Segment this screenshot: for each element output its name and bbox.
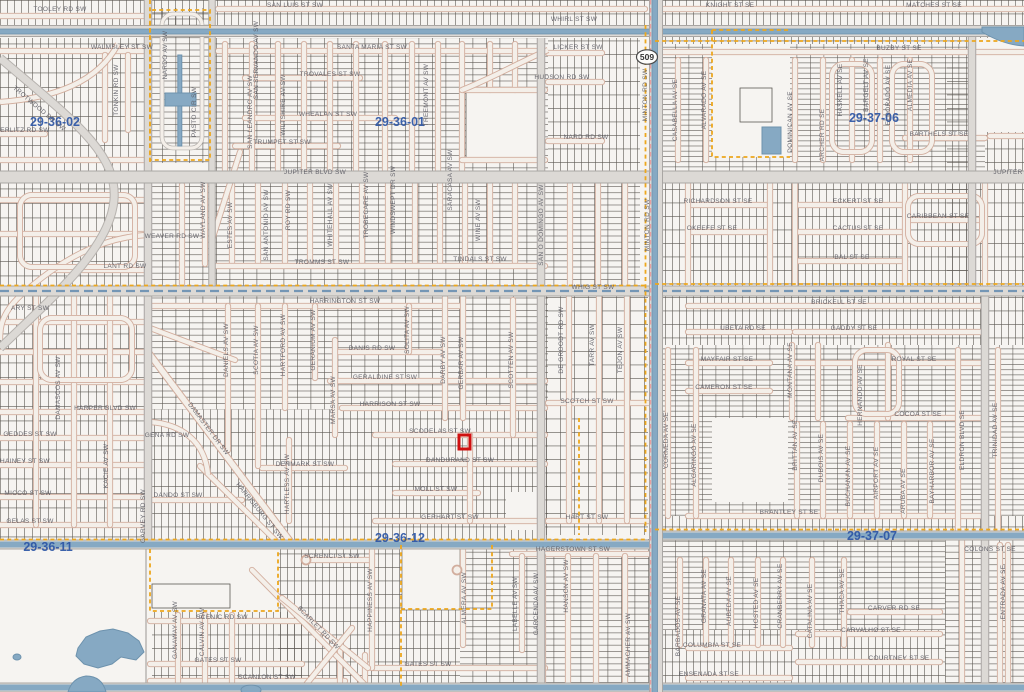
svg-text:GANAWAY AV SW: GANAWAY AV SW (172, 600, 179, 659)
svg-text:HARTFORD AV SW: HARTFORD AV SW (280, 313, 287, 376)
svg-text:GERBAR AV SW: GERBAR AV SW (458, 336, 465, 390)
svg-text:HUDSON RD SW: HUDSON RD SW (534, 74, 590, 81)
svg-text:MICCO ST SW: MICCO ST SW (4, 490, 52, 497)
svg-text:DAMASCOS AV SW: DAMASCOS AV SW (55, 356, 62, 420)
svg-text:29-37-07: 29-37-07 (847, 529, 897, 543)
svg-text:LABELLE AV SW: LABELLE AV SW (512, 576, 519, 631)
svg-text:MOLL ST SW: MOLL ST SW (415, 486, 458, 493)
svg-text:THACA AV SE: THACA AV SE (839, 568, 846, 613)
svg-text:BRANTLEY ST SE: BRANTLEY ST SE (760, 509, 819, 516)
svg-text:OKEEFE ST SE: OKEEFE ST SE (687, 225, 738, 232)
svg-text:CRANBERRY AV SE: CRANBERRY AV SE (777, 563, 784, 629)
svg-text:TRUMPET ST SW: TRUMPET ST SW (253, 139, 311, 146)
svg-text:CARVALHO ST SE: CARVALHO ST SE (841, 627, 901, 634)
svg-text:GADDY ST SE: GADDY ST SE (831, 325, 878, 332)
svg-text:SANTA MARIA ST SW: SANTA MARIA ST SW (337, 44, 408, 51)
svg-text:NARDO AV SW: NARDO AV SW (162, 30, 169, 79)
svg-text:DE GROODT RD SW: DE GROODT RD SW (558, 306, 565, 374)
svg-text:MAYFAIR ST SE: MAYFAIR ST SE (701, 356, 754, 363)
svg-text:COLUMBIA ST SE: COLUMBIA ST SE (683, 642, 742, 649)
svg-text:SOLITA AV SW: SOLITA AV SW (404, 306, 411, 354)
svg-text:TROMMS ST SW: TROMMS ST SW (295, 259, 350, 266)
svg-text:ALGARINGO AV SE: ALGARINGO AV SE (691, 423, 698, 487)
svg-text:BARGELT AV SE: BARGELT AV SE (863, 58, 870, 112)
svg-text:CARVER RD SE: CARVER RD SE (868, 605, 921, 612)
svg-text:ESTES AV SW: ESTES AV SW (227, 201, 234, 248)
svg-text:GELAS ST SW: GELAS ST SW (6, 518, 54, 525)
svg-text:CORNEDA AV SE: CORNEDA AV SE (663, 412, 670, 469)
svg-text:DANDURAND ST SW: DANDURAND ST SW (426, 457, 495, 464)
svg-text:GENA RD SW: GENA RD SW (145, 432, 190, 439)
svg-text:ROY RD SW: ROY RD SW (285, 189, 292, 230)
svg-text:JUPITER BLVD SW: JUPITER BLVD SW (284, 169, 347, 176)
svg-text:HAPPINESS AV SW: HAPPINESS AV SW (367, 568, 374, 632)
svg-text:PASTO CIR SW: PASTO CIR SW (191, 86, 198, 137)
svg-text:MINTON RD SW: MINTON RD SW (644, 198, 651, 251)
svg-text:TINDALS ST SW: TINDALS ST SW (453, 256, 507, 263)
svg-text:HART ST SW: HART ST SW (566, 514, 609, 521)
svg-text:ERLITZ RD SW: ERLITZ RD SW (0, 127, 50, 134)
svg-text:LICKER ST SW: LICKER ST SW (553, 44, 603, 51)
svg-text:HASKELL AV SE: HASKELL AV SE (837, 63, 844, 116)
svg-text:DARBY AV SW: DARBY AV SW (440, 336, 447, 384)
svg-text:TROVALES ST SW: TROVALES ST SW (300, 71, 361, 78)
svg-text:BUZBY ST SE: BUZBY ST SE (876, 45, 922, 52)
svg-text:HAINEY ST SW: HAINEY ST SW (0, 458, 51, 465)
svg-text:SCOTTEN AV SW: SCOTTEN AV SW (508, 331, 515, 388)
svg-text:KACIE AV SW: KACIE AV SW (103, 443, 110, 488)
svg-text:TARR AV SW: TARR AV SW (589, 323, 596, 366)
svg-text:DUBOIS AV SE: DUBOIS AV SE (818, 433, 825, 482)
svg-text:ALMERA AV SW: ALMERA AV SW (461, 571, 468, 623)
svg-text:GARCENDA AV SW: GARCENDA AV SW (533, 572, 540, 635)
svg-text:WHITEHALL AV SW: WHITEHALL AV SW (327, 183, 334, 247)
svg-text:SAN LUIS ST SW: SAN LUIS ST SW (267, 2, 324, 9)
svg-text:BARTHELS ST SE: BARTHELS ST SE (910, 131, 969, 138)
svg-text:SAN SERVANDO AV SW: SAN SERVANDO AV SW (253, 20, 260, 99)
svg-text:BAYHARBOR AV SE: BAYHARBOR AV SE (929, 438, 936, 503)
svg-text:GERALDINE ST SW: GERALDINE ST SW (353, 374, 418, 381)
svg-text:ECKERT ST SE: ECKERT ST SE (833, 198, 884, 205)
svg-text:BRICKELL ST SE: BRICKELL ST SE (811, 299, 867, 306)
svg-text:LANT RD SW: LANT RD SW (104, 263, 148, 270)
svg-text:HERNANDO AV SE: HERNANDO AV SE (857, 364, 864, 426)
svg-text:DANIELS AV SW: DANIELS AV SW (223, 323, 230, 377)
svg-text:GARVEY RD SW: GARVEY RD SW (140, 488, 147, 542)
svg-text:MARSA AV SW: MARSA AV SW (330, 375, 337, 424)
svg-text:NARD RD SW: NARD RD SW (564, 134, 609, 141)
svg-text:ELDORADO AV SE: ELDORADO AV SE (885, 64, 892, 125)
svg-text:GERHART ST SW: GERHART ST SW (421, 514, 479, 521)
svg-text:TREEMONT AV SW: TREEMONT AV SW (423, 63, 430, 126)
svg-text:ARCHER RD SE: ARCHER RD SE (819, 108, 826, 161)
svg-text:CASABELLA AV SE: CASABELLA AV SE (672, 79, 679, 142)
svg-text:TONKIN RD SW: TONKIN RD SW (113, 64, 120, 116)
svg-text:AMMACHER AV SW: AMMACHER AV SW (625, 612, 632, 677)
svg-text:TROBECARE AV SW: TROBECARE AV SW (363, 171, 370, 238)
svg-text:JUPITER: JUPITER (993, 169, 1022, 176)
svg-text:SCOTCH ST SW: SCOTCH ST SW (560, 398, 614, 405)
svg-text:ROYAL ST SE: ROYAL ST SE (891, 356, 936, 363)
svg-text:WINE AV SW: WINE AV SW (475, 198, 482, 240)
svg-text:SAN LEANDRO AV SW: SAN LEANDRO AV SW (247, 75, 254, 149)
svg-text:ARUBA AV SE: ARUBA AV SE (900, 468, 907, 514)
svg-text:GATES ST SW: GATES ST SW (194, 657, 242, 664)
svg-text:HOSTED AV SE: HOSTED AV SE (753, 577, 760, 628)
svg-text:SAN ANTONIO AV SW: SAN ANTONIO AV SW (263, 189, 270, 261)
svg-text:TOOLEY RD SW: TOOLEY RD SW (33, 6, 87, 13)
svg-text:WILTSHIRE AV SW: WILTSHIRE AV SW (280, 74, 287, 136)
svg-text:COURTNEY ST SE: COURTNEY ST SE (869, 655, 930, 662)
svg-text:HARRINGTON ST SW: HARRINGTON ST SW (310, 298, 381, 305)
svg-text:CAMERON ST SE: CAMERON ST SE (695, 384, 753, 391)
svg-text:ENSENADA ST SE: ENSENADA ST SE (679, 671, 739, 678)
svg-text:29-36-11: 29-36-11 (23, 540, 72, 554)
svg-text:ALMEDIA AV SE: ALMEDIA AV SE (907, 59, 914, 112)
svg-text:SAN O DOMINGO AV SW: SAN O DOMINGO AV SW (538, 184, 545, 266)
svg-text:ARY ST SW: ARY ST SW (11, 305, 50, 312)
svg-text:SCODELAS ST SW: SCODELAS ST SW (409, 428, 471, 435)
svg-text:CARIBBEAN ST SE: CARIBBEAN ST SE (907, 213, 970, 220)
svg-text:GATES ST SW: GATES ST SW (404, 661, 452, 668)
svg-text:ELDRON BLVD SE: ELDRON BLVD SE (959, 410, 966, 470)
svg-text:UBETA RD SE: UBETA RD SE (720, 325, 766, 332)
svg-text:TEJON AV SW: TEJON AV SW (617, 326, 624, 373)
svg-text:HAGERSTOWN ST SW: HAGERSTOWN ST SW (536, 546, 611, 553)
svg-text:SCOTIA AV SW: SCOTIA AV SW (253, 325, 260, 375)
svg-text:MINTON RD SW: MINTON RD SW (642, 68, 649, 121)
svg-text:BRITTAN AV SE: BRITTAN AV SE (792, 419, 799, 471)
svg-text:DOMINICAN AV SE: DOMINICAN AV SE (787, 91, 794, 153)
svg-text:WINDSWEPT DR SW: WINDSWEPT DR SW (390, 165, 397, 234)
svg-text:TRINIDAD AV SE: TRINIDAD AV SE (992, 402, 999, 457)
svg-text:GRANATA AV SE: GRANATA AV SE (701, 569, 708, 623)
svg-text:CALVIN AV SW: CALVIN AV SW (199, 607, 206, 656)
svg-text:SCRENCI ST SW: SCRENCI ST SW (304, 553, 360, 560)
svg-text:WHEALAN ST SW: WHEALAN ST SW (299, 111, 358, 118)
svg-text:WHIRL ST SW: WHIRL ST SW (551, 16, 598, 23)
svg-text:GEDDES ST SW: GEDDES ST SW (3, 431, 57, 438)
svg-text:WHIG ST SW: WHIG ST SW (572, 284, 616, 291)
svg-text:COLONS ST SE: COLONS ST SE (964, 546, 1016, 553)
svg-text:AIRPORT AV SE: AIRPORT AV SE (873, 446, 880, 499)
svg-text:CACTUS ST SE: CACTUS ST SE (833, 225, 884, 232)
svg-text:SARACASA AV SW: SARACASA AV SW (447, 149, 454, 211)
svg-text:DANIS RD SW: DANIS RD SW (349, 345, 396, 352)
svg-text:29-36-12: 29-36-12 (375, 531, 425, 545)
svg-text:WALMSLEY ST SW: WALMSLEY ST SW (91, 44, 154, 51)
svg-text:COCOA ST SE: COCOA ST SE (894, 411, 942, 418)
svg-text:KNIGHT ST SE: KNIGHT ST SE (706, 2, 755, 9)
svg-text:BUCHANAN AV SE: BUCHANAN AV SE (845, 445, 852, 506)
svg-text:29-36-01: 29-36-01 (375, 115, 425, 129)
svg-text:RICHARDSON ST SE: RICHARDSON ST SE (684, 198, 753, 205)
svg-text:MATCHES ST SE: MATCHES ST SE (906, 2, 962, 9)
svg-text:BAL ST SE: BAL ST SE (834, 254, 870, 261)
svg-text:HARPER BLVD SW: HARPER BLVD SW (74, 405, 136, 412)
svg-text:DANDO ST SW: DANDO ST SW (153, 492, 203, 499)
svg-text:509: 509 (640, 52, 654, 62)
svg-text:GERANIUM AV SW: GERANIUM AV SW (310, 309, 317, 371)
svg-text:WAYLAND AV SW: WAYLAND AV SW (200, 181, 207, 239)
svg-text:HARTLESS AV SW: HARTLESS AV SW (284, 453, 291, 514)
svg-text:CATALINA AV SE: CATALINA AV SE (807, 583, 814, 638)
svg-text:ALVARADO AV SE: ALVARADO AV SE (701, 70, 708, 129)
svg-text:HANSON AV SW: HANSON AV SW (563, 559, 570, 613)
svg-text:AUBEDA AV SE: AUBEDA AV SE (726, 576, 733, 626)
svg-text:BARBADOS AV SE: BARBADOS AV SE (675, 595, 682, 656)
svg-text:SCANLON ST SW: SCANLON ST SW (238, 674, 296, 681)
svg-text:ENTRADA AV SE: ENTRADA AV SE (1000, 564, 1007, 619)
svg-text:MONTANA AV SE: MONTANA AV SE (787, 342, 794, 398)
svg-text:HARRISON ST SW: HARRISON ST SW (360, 401, 421, 408)
svg-text:WEAVER RD SW: WEAVER RD SW (145, 233, 200, 240)
